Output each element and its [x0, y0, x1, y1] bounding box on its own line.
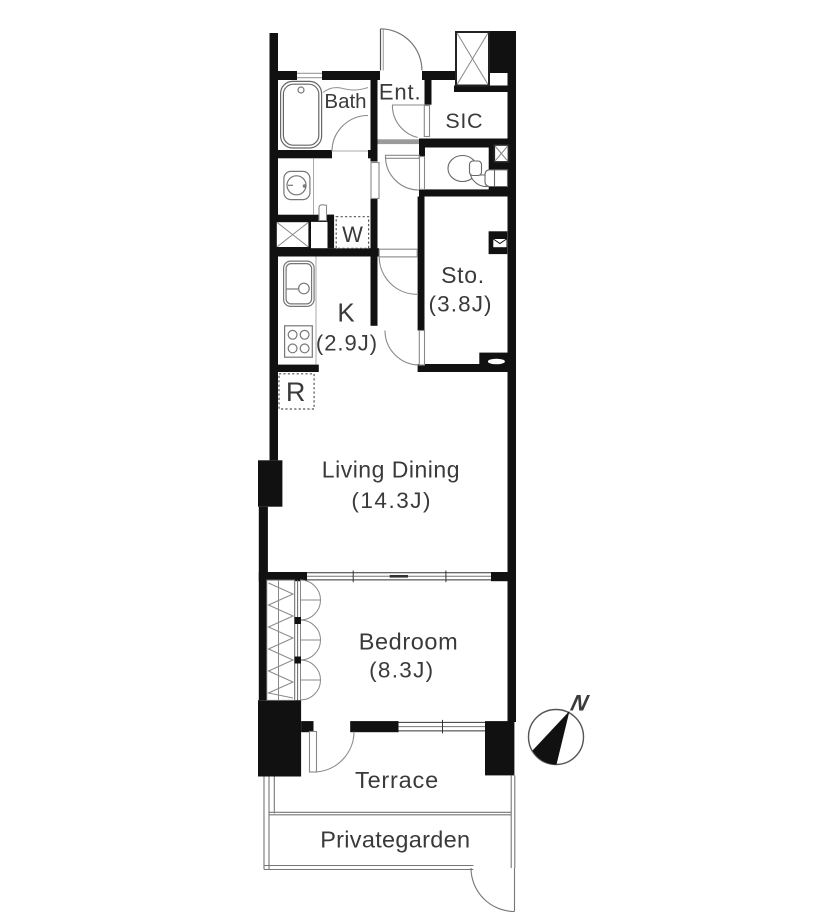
- svg-text:Sto.: Sto.: [441, 262, 485, 288]
- svg-text:Living Dining: Living Dining: [322, 457, 460, 483]
- svg-text:K: K: [337, 298, 355, 328]
- svg-text:W: W: [342, 222, 363, 247]
- svg-text:(8.3J): (8.3J): [369, 658, 434, 683]
- svg-text:(2.9J): (2.9J): [316, 331, 378, 356]
- svg-text:Ent.: Ent.: [379, 80, 422, 105]
- svg-text:Terrace: Terrace: [355, 767, 439, 793]
- svg-text:(14.3J): (14.3J): [351, 488, 432, 513]
- svg-text:Bath: Bath: [324, 90, 366, 113]
- svg-text:(3.8J): (3.8J): [429, 292, 493, 317]
- svg-text:R: R: [286, 377, 306, 407]
- svg-text:Bedroom: Bedroom: [359, 629, 459, 655]
- svg-text:SIC: SIC: [445, 109, 483, 133]
- svg-text:Privategarden: Privategarden: [320, 827, 470, 853]
